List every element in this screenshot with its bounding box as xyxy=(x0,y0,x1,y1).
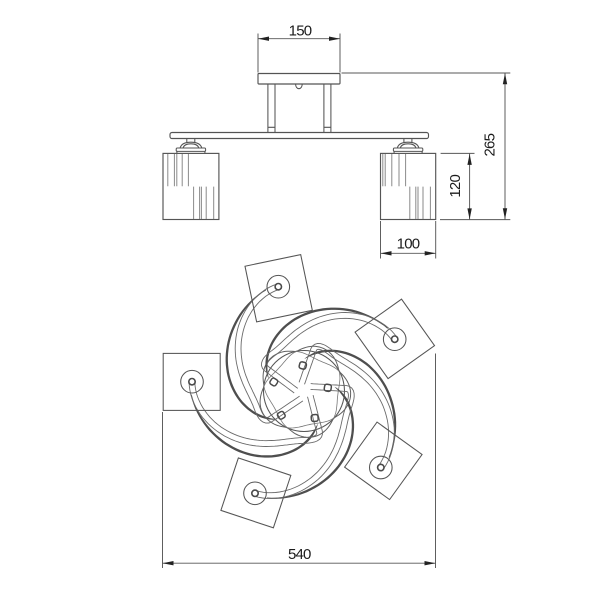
svg-text:120: 120 xyxy=(447,175,464,198)
svg-text:265: 265 xyxy=(481,133,498,156)
svg-text:150: 150 xyxy=(289,23,312,40)
svg-text:100: 100 xyxy=(397,236,420,253)
svg-text:540: 540 xyxy=(288,546,311,563)
